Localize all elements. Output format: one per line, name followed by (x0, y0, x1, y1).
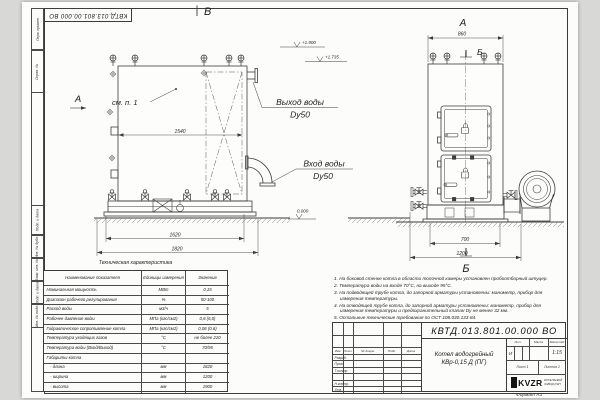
outlet-dn-label: Dy50 (290, 110, 310, 120)
spec-cell: 5 (186, 305, 229, 315)
spec-cell: Рабочее давление воды (44, 315, 142, 325)
mass-header: Масса (529, 338, 548, 346)
change-col-header: Дата (401, 347, 421, 354)
elevation-marks: +1.900 +1.735 0.000 (280, 40, 347, 219)
spec-header: Значение (186, 271, 229, 286)
spec-cell (186, 354, 229, 364)
front-view-label: В (204, 6, 211, 18)
spec-cell: 70/95 (186, 344, 229, 354)
product-name-cell: Котел водогрейный КВр-0,15 Д (ПГ) (421, 338, 506, 392)
grid-line (383, 323, 384, 393)
note-line: 1. На боковой стенке котла в области топ… (334, 276, 564, 282)
scale-value: 1:15 (548, 346, 566, 360)
spec-cell: - длина (44, 364, 142, 374)
spec-cell: °С (142, 334, 186, 344)
spec-cell: Температура уходящих газов (44, 334, 142, 344)
front-view (70, 55, 275, 216)
note-line: 3. На подводящей трубе котла, до запорно… (334, 290, 564, 302)
section-a-label: А (74, 94, 81, 105)
grid-line (522, 346, 523, 360)
spec-header: Единицы измерения (142, 271, 186, 286)
spec-cell: Номинальная мощность (44, 286, 142, 296)
lit-header: Лит. (507, 338, 529, 346)
role-label: Пров. (335, 361, 357, 367)
node-b-top-label: Б (477, 47, 483, 57)
sheets-cell: Листов 2 (538, 360, 566, 374)
spec-header: Наименование показателя (44, 271, 142, 286)
sheets-label: Листов (544, 365, 557, 369)
inlet-elbow (246, 156, 276, 186)
spec-cell: МВт (142, 286, 186, 296)
logo-text: KVZR (518, 378, 542, 388)
sheet-label: Лист (517, 365, 526, 369)
change-col-header: Изм. (333, 347, 343, 354)
grid-line (401, 323, 402, 393)
spec-cell: 1200 (186, 373, 229, 383)
spec-cell: МПа (кгс/см2) (142, 315, 186, 325)
dim-1540: 1540 (174, 129, 185, 135)
spec-cell: 1820 (186, 364, 229, 374)
spec-cell: 0,15 (186, 286, 229, 296)
inlet-label: Вход воды (303, 159, 345, 169)
change-col-header: № докум. (353, 347, 383, 354)
spec-table: Наименование показателя Единицы измерени… (43, 270, 228, 392)
company-name: КОТЕЛЬНЫЙ ЗАВОД РЭП (544, 379, 562, 386)
spec-cell: Расход воды (44, 305, 142, 315)
spec-cell: % (142, 296, 186, 306)
title-block: КВТД.013.801.00.000 ВО Изм. Лист № докум… (332, 322, 566, 392)
spec-cell: - высота (44, 383, 142, 393)
dim-1620: 1620 (169, 233, 180, 239)
spec-cell: °С (142, 344, 186, 354)
product-name-line1: Котел водогрейный (435, 351, 494, 359)
technical-notes: 1. На боковой стенке котла в области топ… (334, 276, 564, 322)
see-note-label: см. п. 1 (112, 98, 138, 107)
spec-cell: Температура воды (Вход/Выход) (44, 344, 142, 354)
spec-cell: 1900 (186, 383, 229, 393)
spec-cell: - ширина (44, 373, 142, 383)
sheet-value: 1 (527, 365, 529, 369)
sheet-cell: Лист 1 (507, 360, 538, 374)
elevation-mid-label: +1.735 (325, 55, 339, 60)
lit-value: И (507, 346, 514, 360)
product-name-line2: КВр-0,15 Д (ПГ) (441, 359, 486, 367)
role-label: Т.контр. (335, 368, 357, 374)
spec-cell (142, 354, 186, 364)
dim-1820: 1820 (171, 247, 182, 253)
note-line: 4. На отводящей трубе котла, до запорной… (334, 303, 564, 315)
side-view-label: А (459, 18, 467, 29)
dim-700: 700 (461, 237, 470, 243)
title-block-right: Лит. Масса Масштаб И 1:15 Лист 1 Листов … (506, 338, 566, 392)
spec-cell: Габариты котла (44, 354, 142, 364)
scale-header: Масштаб (548, 338, 566, 346)
format-label: Формат А3 (492, 393, 566, 398)
node-b-bottom-label: Б (462, 263, 469, 275)
side-view (411, 50, 555, 228)
company-logo: KVZR КОТЕЛЬНЫЙ ЗАВОД РЭП (507, 374, 566, 391)
inlet-dn-label: Dy50 (313, 171, 333, 181)
spec-cell: 50-100 (186, 296, 229, 306)
elevation-zero-label: 0.000 (297, 209, 309, 214)
spec-cell: м3/ч (142, 305, 186, 315)
spec-cell: мм (142, 364, 186, 374)
title-block-doc-number: КВТД.013.801.00.000 ВО (421, 323, 567, 339)
spec-cell: мм (142, 383, 186, 393)
spec-cell: 0,06 (0,6) (186, 325, 229, 335)
change-col-header: Подп. (383, 347, 401, 354)
sheets-value: 2 (558, 365, 560, 369)
company-name-line2: ЗАВОД РЭП (544, 383, 562, 386)
spec-cell: мм (142, 373, 186, 383)
grid-line (514, 346, 515, 360)
note-line: 2. Температура воды на входе 70°С, на вы… (334, 283, 564, 289)
spec-cell: МПа (кгс/см2) (142, 325, 186, 335)
logo-mark-icon (511, 377, 517, 388)
elevation-top-label: +1.900 (302, 40, 316, 45)
note-line: 5. Остальные технические требования по О… (334, 315, 564, 321)
drawing-sheet-viewport: Перв. примен. Справ. № Подп. и дата Инв.… (0, 0, 600, 400)
spec-table-title: Техническая характеристика (43, 260, 228, 266)
role-label: Утв. (335, 387, 357, 393)
dim-860: 860 (458, 32, 467, 38)
spec-cell: 0,6 (6,0) (186, 315, 229, 325)
outlet-label: Выход воды (276, 97, 325, 107)
spec-cell: Диапазон рабочего регулирования (44, 296, 142, 306)
grid-line (333, 335, 421, 336)
spec-cell: Гидравлическое сопротивление котла (44, 325, 142, 335)
valve-icon (110, 55, 244, 66)
spec-cell: не более 220 (186, 334, 229, 344)
change-col-header: Лист (343, 347, 353, 354)
